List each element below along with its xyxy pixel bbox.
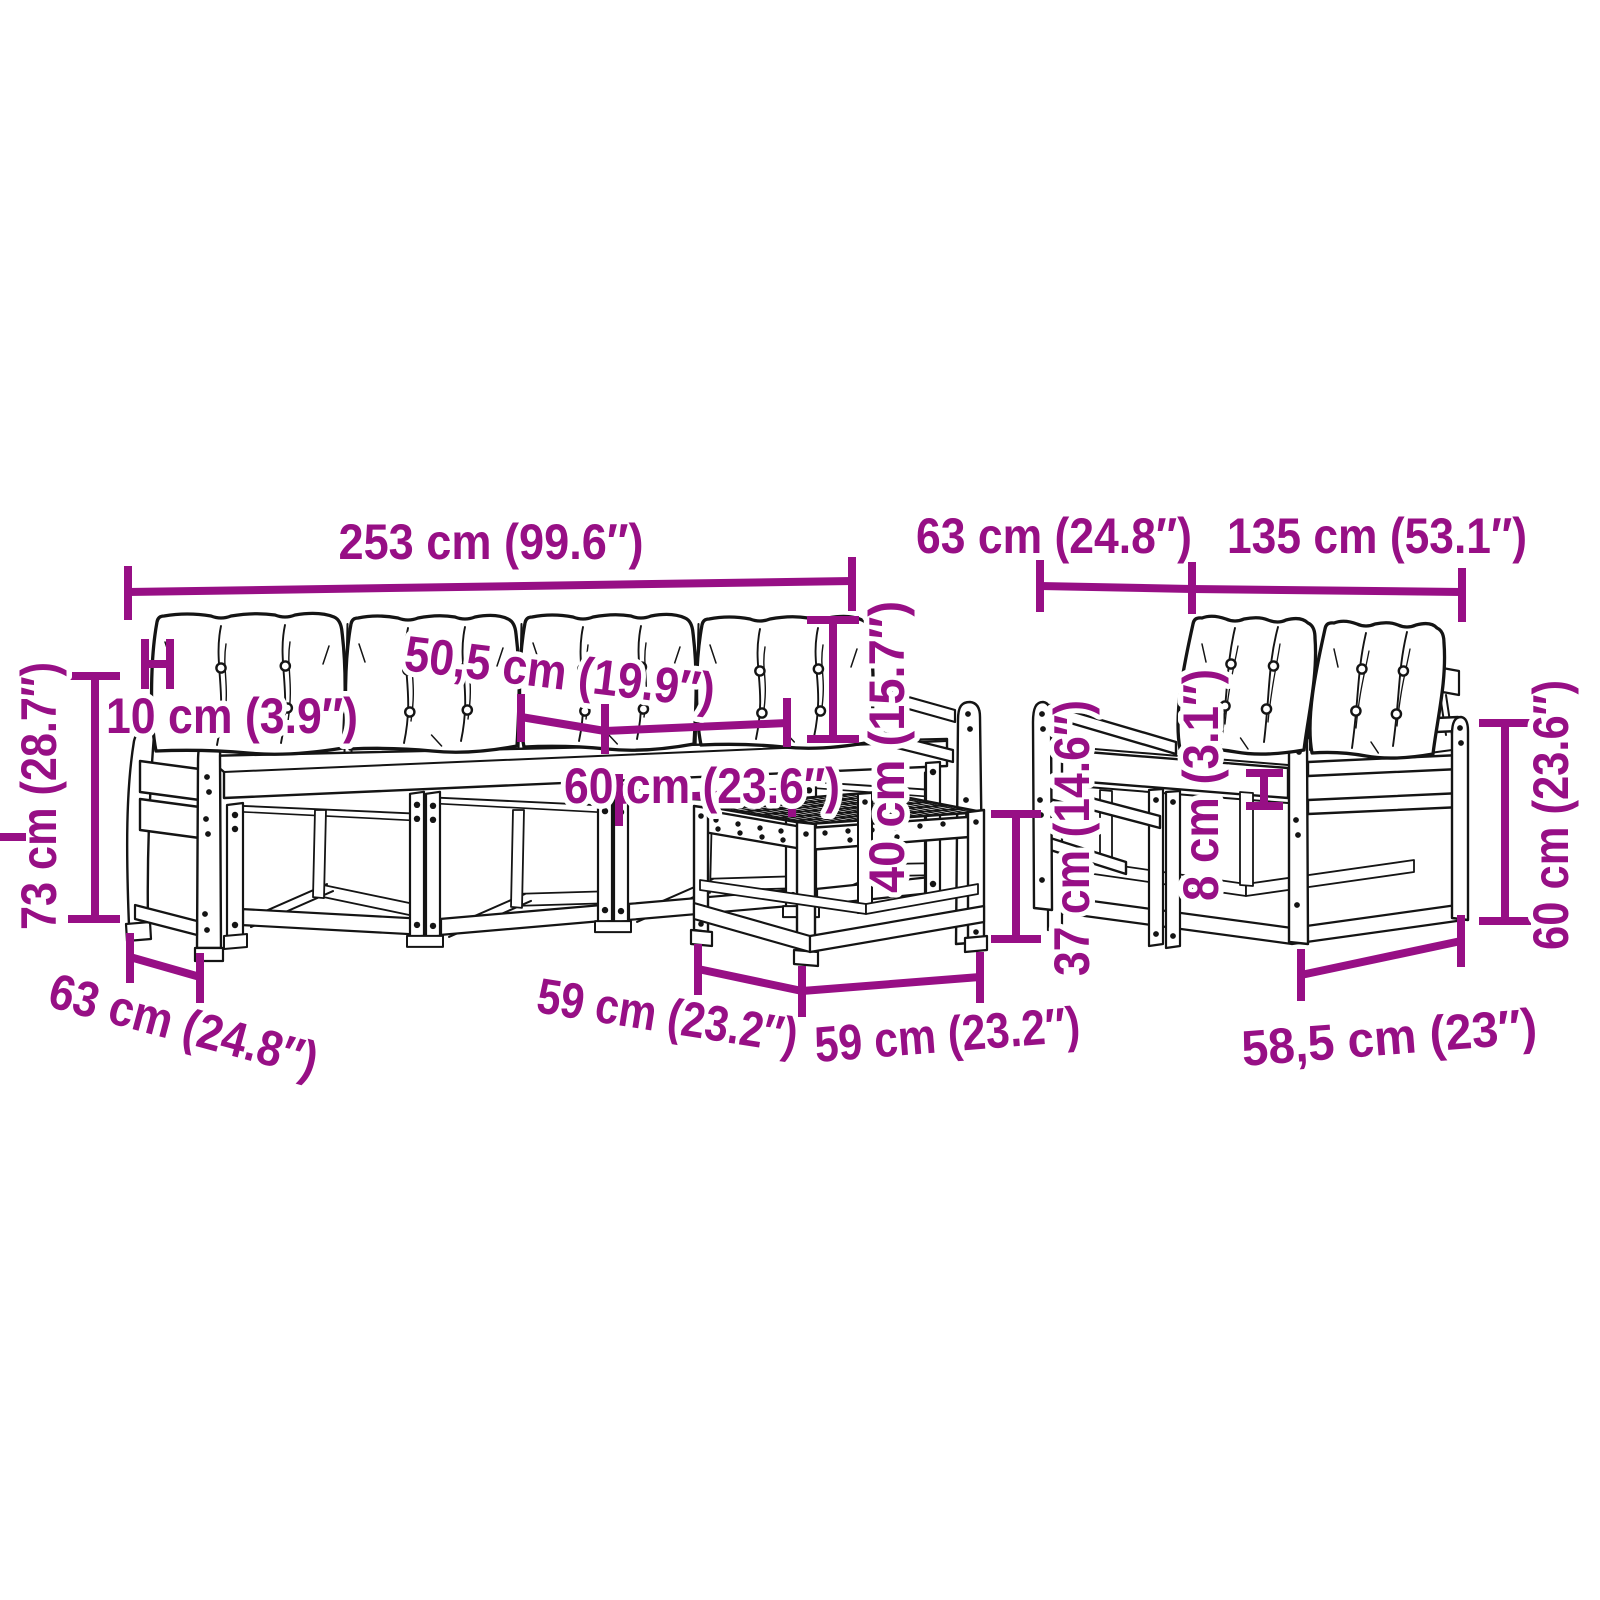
svg-text:253 cm (99.6″): 253 cm (99.6″) xyxy=(339,514,644,570)
svg-text:8 cm (3.1″): 8 cm (3.1″) xyxy=(1173,669,1229,901)
svg-text:73 cm (28.7″): 73 cm (28.7″) xyxy=(11,662,67,930)
svg-text:40 cm (15.7″): 40 cm (15.7″) xyxy=(859,601,915,893)
svg-text:10 cm (3.9″): 10 cm (3.9″) xyxy=(106,688,358,744)
svg-text:63 cm (24.8″): 63 cm (24.8″) xyxy=(916,508,1192,564)
svg-text:135 cm (53.1″): 135 cm (53.1″) xyxy=(1227,508,1527,564)
svg-text:37 cm (14.6″): 37 cm (14.6″) xyxy=(1044,700,1100,976)
svg-text:60 cm (23.6″): 60 cm (23.6″) xyxy=(1523,680,1579,950)
svg-text:60 cm (23.6″): 60 cm (23.6″) xyxy=(564,758,840,814)
